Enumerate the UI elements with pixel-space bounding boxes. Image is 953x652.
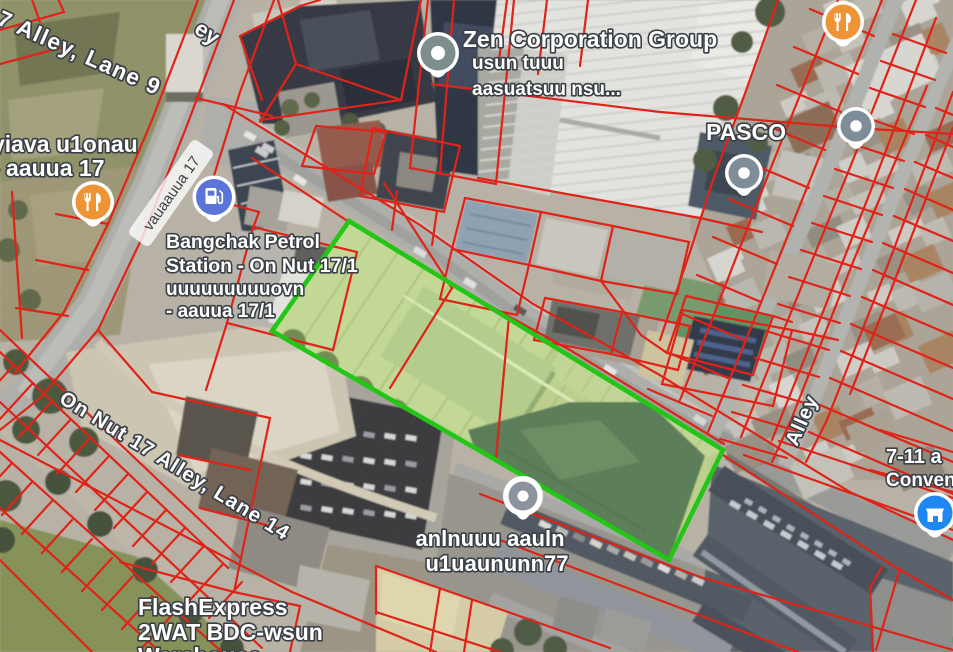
svg-text:2WAT BDC-wsun: 2WAT BDC-wsun (138, 619, 323, 645)
svg-text:Station - On Nut 17/1: Station - On Nut 17/1 (166, 255, 358, 277)
svg-text:yiava u1onau: yiava u1onau (0, 131, 138, 157)
svg-text:FlashExpress: FlashExpress (138, 594, 288, 620)
svg-text:Conveni: Conveni (886, 470, 953, 491)
svg-text:Zen Corporation Group: Zen Corporation Group (463, 26, 717, 52)
svg-text:usun tuuu: usun tuuu (472, 53, 564, 74)
svg-text:Bangchak Petrol: Bangchak Petrol (166, 231, 320, 253)
svg-text:7-11 a: 7-11 a (886, 446, 942, 468)
svg-text:- aauua 17/1: - aauua 17/1 (166, 301, 275, 322)
svg-text:PASCO: PASCO (706, 119, 786, 145)
svg-text:Warehouse: Warehouse (138, 643, 261, 652)
svg-text:uuuuuuuuuovn: uuuuuuuuuovn (166, 279, 304, 300)
svg-text:aasuatsuu nsu...: aasuatsuu nsu... (472, 79, 621, 100)
svg-text:u1uaununn77: u1uaununn77 (425, 551, 568, 576)
svg-text:- aauua 17: - aauua 17 (0, 155, 105, 181)
svg-text:anlnuuu aauln: anlnuuu aauln (415, 526, 564, 551)
